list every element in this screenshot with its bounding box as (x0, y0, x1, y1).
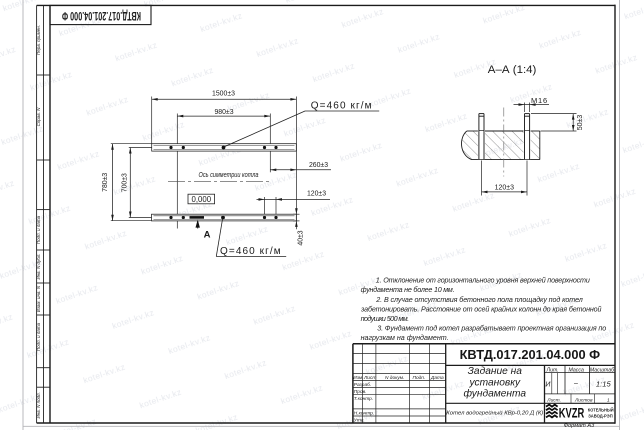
svg-text:Котел водогрейный КВр-0,20 Д (: Котел водогрейный КВр-0,20 Д (К) (446, 409, 543, 416)
svg-text:КВТД.017.201.04.000 Ф: КВТД.017.201.04.000 Ф (460, 347, 600, 362)
svg-text:Взам. инв. N: Взам. инв. N (36, 285, 41, 312)
svg-text:Инв. N подл.: Инв. N подл. (36, 392, 41, 418)
svg-text:Пров.: Пров. (354, 389, 367, 395)
svg-text:2. В случае отсутствия бетонно: 2. В случае отсутствия бетонного пола пл… (375, 296, 583, 304)
svg-text:260±3: 260±3 (309, 162, 328, 169)
svg-text:980±3: 980±3 (214, 109, 233, 116)
svg-text:N докум.: N докум. (385, 375, 404, 381)
svg-text:Лист: Лист (363, 375, 376, 381)
svg-text:–: – (573, 380, 578, 387)
svg-text:нагрузкам на фундамент.: нагрузкам на фундамент. (361, 334, 449, 342)
svg-text:Н.контр.: Н.контр. (354, 411, 374, 417)
svg-text:Изм.: Изм. (353, 375, 363, 381)
svg-text:Масса: Масса (569, 368, 584, 374)
svg-text:А–А (1:4): А–А (1:4) (488, 64, 537, 76)
svg-text:Разраб.: Разраб. (354, 382, 371, 388)
svg-text:Q=460 кг/м: Q=460 кг/м (220, 246, 282, 257)
svg-text:Формат А3: Формат А3 (564, 423, 595, 429)
svg-text:М16: М16 (531, 96, 548, 105)
svg-text:Задание на: Задание на (468, 366, 523, 377)
svg-text:Утв.: Утв. (354, 418, 365, 424)
svg-text:КОТЕЛЬНЫЙ: КОТЕЛЬНЫЙ (588, 406, 614, 413)
svg-text:1: 1 (607, 398, 610, 404)
svg-text:KVZR: KVZR (559, 405, 585, 420)
svg-text:Подп.: Подп. (413, 375, 426, 381)
svg-text:Q=460 кг/м: Q=460 кг/м (311, 100, 373, 111)
svg-text:Инв. N дубл.: Инв. N дубл. (36, 253, 41, 279)
svg-text:780±3: 780±3 (102, 173, 109, 192)
svg-text:1:15: 1:15 (596, 380, 612, 389)
svg-text:Лит.: Лит. (546, 368, 559, 374)
svg-text:ЗАВОД-РЭП: ЗАВОД-РЭП (588, 413, 613, 418)
svg-text:1500±3: 1500±3 (212, 90, 235, 97)
svg-text:Дата: Дата (430, 375, 444, 381)
svg-text:3. Фундамент под котел разраба: 3. Фундамент под котел разрабатывает про… (377, 325, 606, 333)
svg-text:Т.контр.: Т.контр. (354, 396, 373, 402)
svg-text:Ось симметрии котла: Ось симметрии котла (199, 172, 259, 179)
svg-text:фундамента не более 10 мм.: фундамента не более 10 мм. (361, 286, 455, 294)
svg-text:0,000: 0,000 (192, 195, 212, 204)
svg-text:установку: установку (468, 378, 521, 389)
svg-text:Подп. и дата: Подп. и дата (36, 215, 41, 244)
svg-text:Лист.: Лист. (546, 398, 561, 404)
svg-text:забетонировать. Расстояние от: забетонировать. Расстояние от осей крайн… (360, 305, 602, 313)
svg-text:120±3: 120±3 (307, 191, 326, 198)
svg-text:Справ. N: Справ. N (36, 107, 41, 127)
svg-text:1. Отклонение от горизонтально: 1. Отклонение от горизонтального уровня … (376, 277, 590, 285)
svg-text:40±3: 40±3 (298, 230, 305, 245)
svg-text:120±3: 120±3 (495, 185, 515, 192)
svg-text:фундамента: фундамента (464, 388, 527, 400)
svg-text:КВТД.017.201.04.000 Ф: КВТД.017.201.04.000 Ф (62, 9, 141, 21)
svg-text:700±3: 700±3 (122, 173, 129, 192)
svg-text:Листов: Листов (574, 398, 593, 404)
svg-text:Подп. и дата: Подп. и дата (36, 322, 41, 351)
svg-text:Масштаб: Масштаб (590, 368, 615, 374)
svg-text:подушки 500 мм.: подушки 500 мм. (361, 315, 410, 323)
svg-text:50±3: 50±3 (577, 115, 584, 131)
svg-text:Перв. примен.: Перв. примен. (36, 25, 41, 55)
svg-text:А: А (204, 230, 211, 241)
